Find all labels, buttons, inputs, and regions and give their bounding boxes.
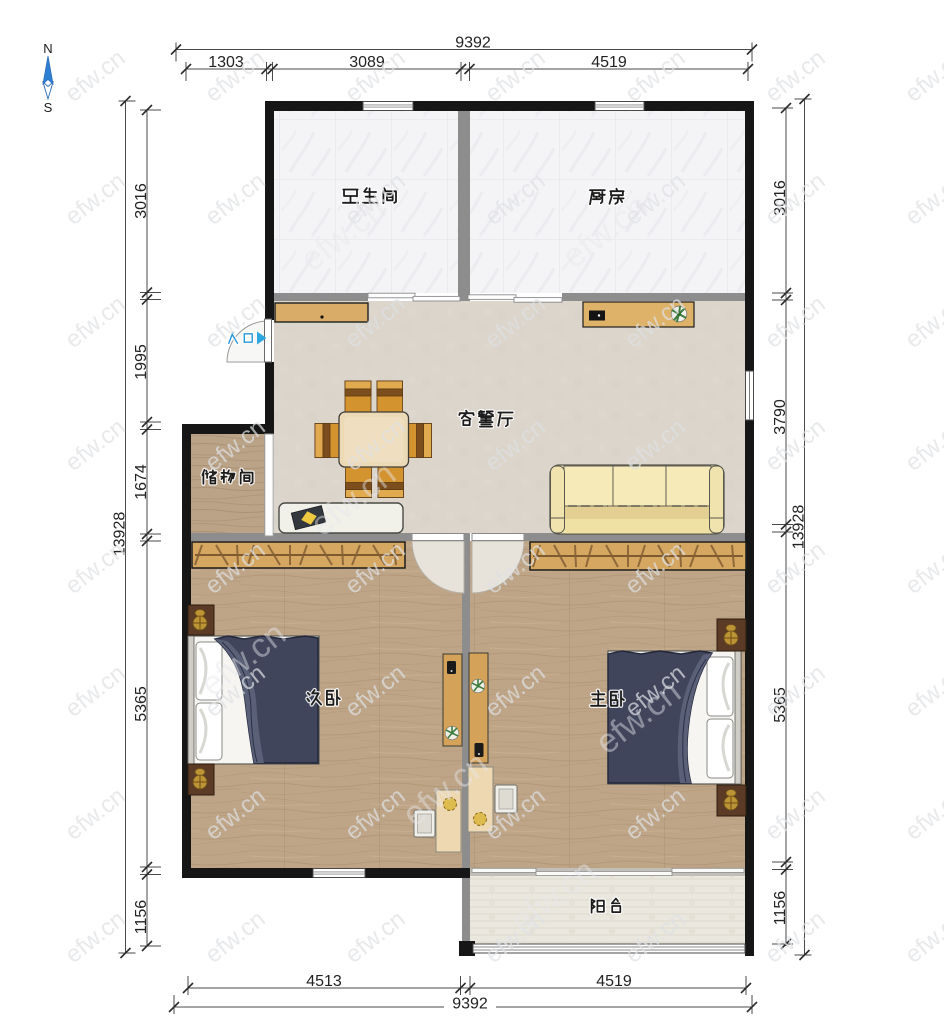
svg-text:1156: 1156	[133, 900, 150, 935]
svg-text:9392: 9392	[455, 35, 491, 52]
svg-text:4519: 4519	[596, 973, 632, 990]
svg-text:5365: 5365	[133, 686, 150, 722]
svg-text:3016: 3016	[133, 183, 150, 219]
svg-text:9392: 9392	[452, 996, 488, 1013]
svg-text:1674: 1674	[133, 464, 150, 500]
svg-text:N: N	[43, 41, 52, 56]
svg-text:S: S	[44, 100, 53, 115]
svg-text:1156: 1156	[772, 891, 789, 926]
svg-text:4519: 4519	[591, 54, 627, 71]
svg-text:1995: 1995	[133, 344, 150, 380]
svg-text:3790: 3790	[772, 399, 789, 435]
svg-text:4513: 4513	[306, 973, 342, 990]
